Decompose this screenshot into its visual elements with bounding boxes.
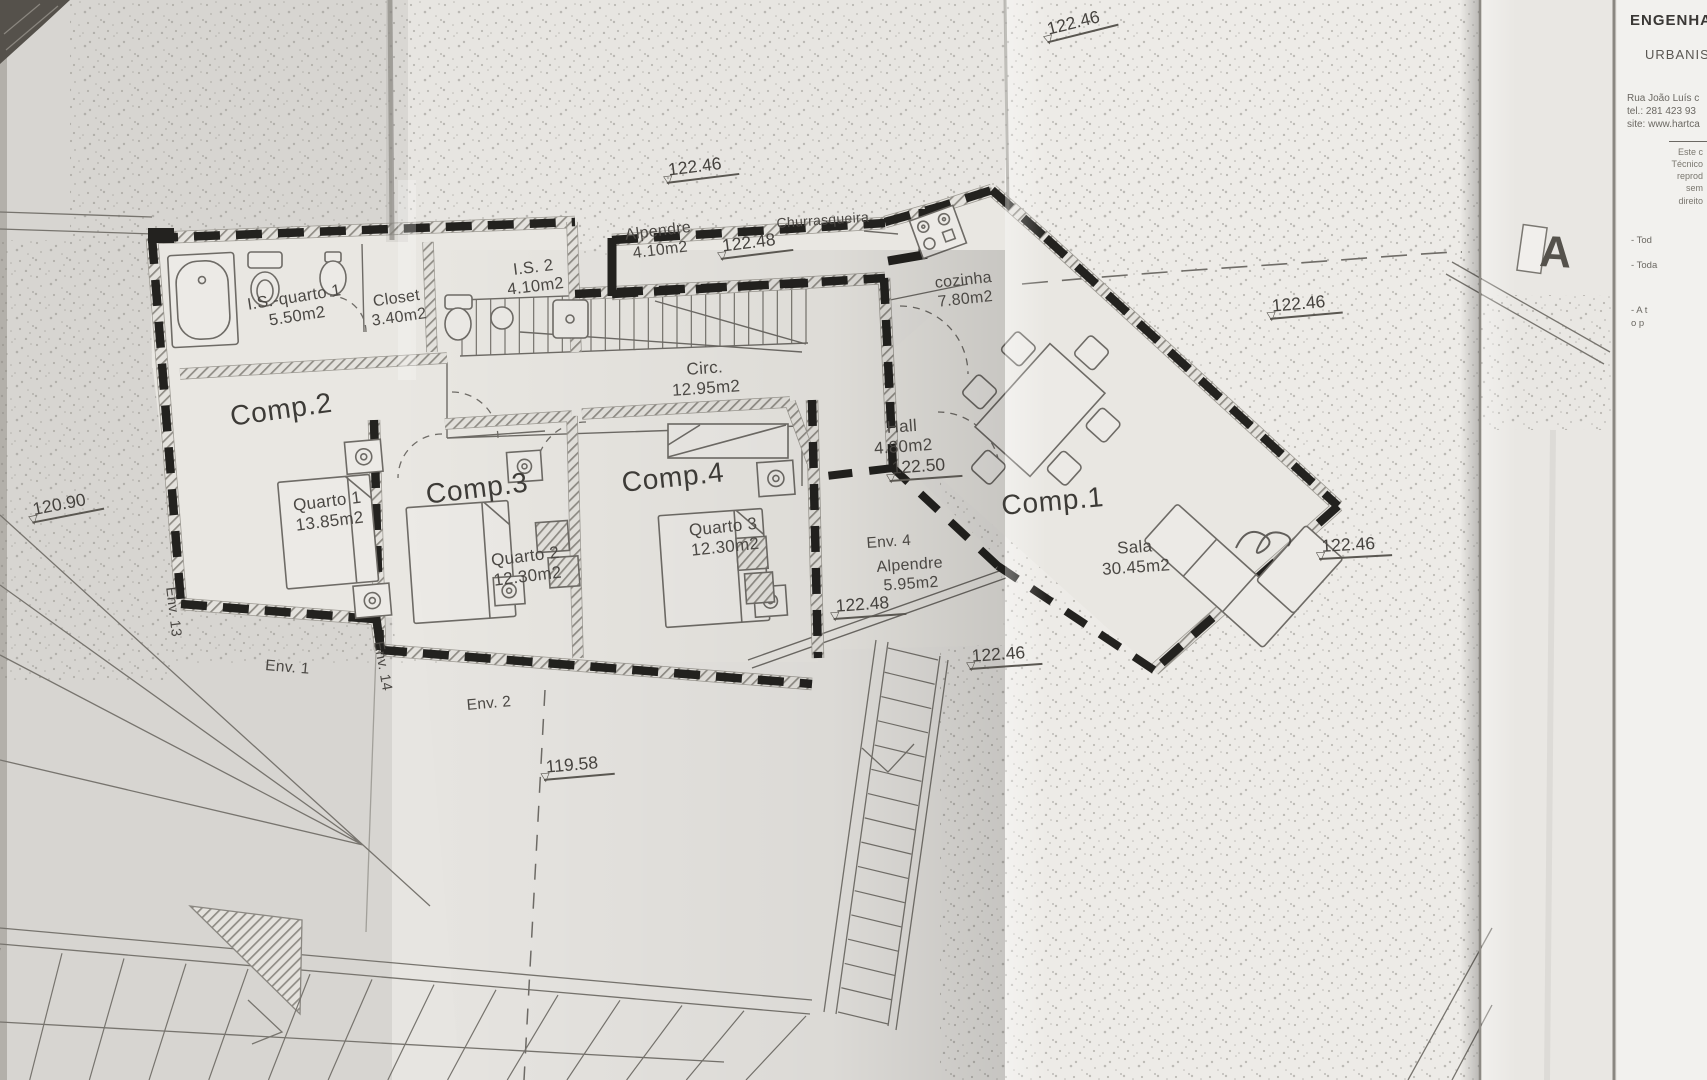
firm-name: ENGENHA bbox=[1630, 12, 1707, 29]
title-block-rule bbox=[1669, 141, 1707, 142]
toilet-icon bbox=[248, 252, 282, 306]
bathtub-icon bbox=[168, 252, 239, 347]
copyright-notice: Este c Técnico reprod sem direito bbox=[1625, 146, 1703, 207]
title-block: ENGENHA URBANIS Rua João Luís c tel.: 28… bbox=[1617, 0, 1707, 1080]
floor-plan-photo: Comp.2Quarto 1 13.85m2Comp.3Quarto 2 12.… bbox=[0, 0, 1707, 1080]
firm-address: Rua João Luís c tel.: 281 423 93 site: w… bbox=[1627, 92, 1707, 131]
notes-list: - Tod - Toda - A t o p bbox=[1631, 235, 1707, 329]
firm-subtitle: URBANIS bbox=[1645, 47, 1707, 62]
floor-plan-drawing bbox=[0, 0, 1707, 1080]
